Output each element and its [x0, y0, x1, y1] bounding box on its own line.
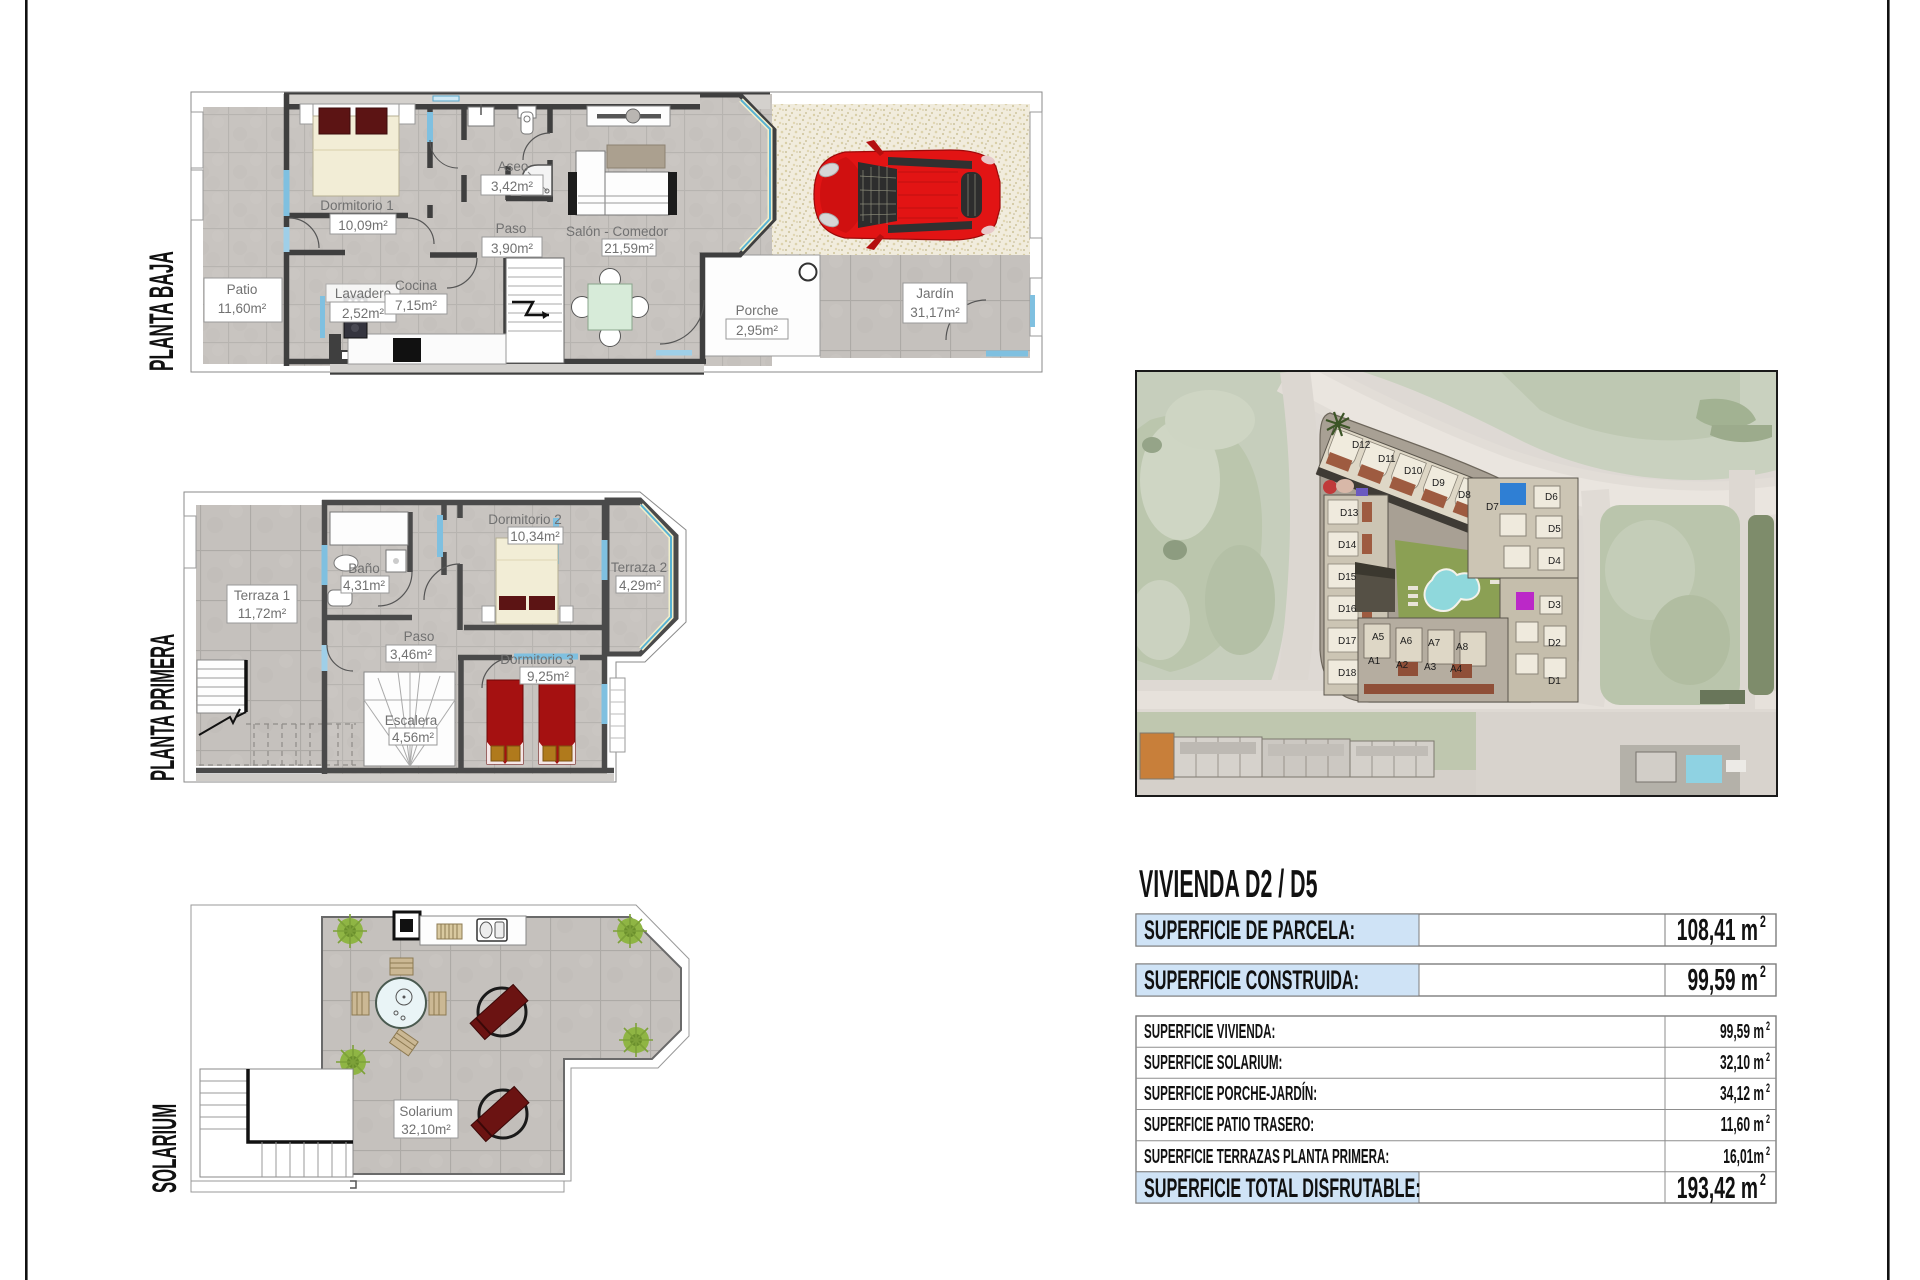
- svg-text:2: 2: [1766, 1113, 1770, 1126]
- svg-text:4,31m²: 4,31m²: [343, 578, 386, 593]
- svg-text:10,09m²: 10,09m²: [338, 218, 388, 233]
- svg-text:PLANTA BAJA: PLANTA BAJA: [143, 251, 181, 371]
- svg-text:A6: A6: [1400, 636, 1413, 647]
- svg-text:D5: D5: [1548, 524, 1561, 535]
- svg-text:11,60m²: 11,60m²: [218, 301, 267, 316]
- svg-text:A4: A4: [1450, 664, 1463, 675]
- svg-text:D6: D6: [1545, 492, 1558, 503]
- svg-text:99,59 m: 99,59 m: [1720, 1021, 1764, 1043]
- svg-text:9,25m²: 9,25m²: [527, 669, 570, 684]
- svg-text:A5: A5: [1372, 632, 1385, 643]
- svg-text:3,46m²: 3,46m²: [390, 647, 433, 662]
- svg-text:SUPERFICIE TERRAZAS PLANTA PRI: SUPERFICIE TERRAZAS PLANTA PRIMERA:: [1144, 1146, 1389, 1168]
- svg-text:SUPERFICIE PATIO TRASERO:: SUPERFICIE PATIO TRASERO:: [1144, 1114, 1314, 1136]
- svg-text:Patio: Patio: [227, 282, 258, 297]
- svg-text:Aseo: Aseo: [498, 159, 529, 174]
- svg-text:Paso: Paso: [404, 629, 435, 644]
- svg-text:2: 2: [1766, 1082, 1770, 1095]
- svg-text:Terraza 2: Terraza 2: [611, 560, 667, 575]
- svg-text:3,42m²: 3,42m²: [491, 179, 534, 194]
- svg-text:11,72m²: 11,72m²: [238, 606, 287, 621]
- svg-text:SUPERFICIE VIVIENDA:: SUPERFICIE VIVIENDA:: [1144, 1021, 1275, 1043]
- svg-text:D10: D10: [1404, 466, 1423, 477]
- svg-text:2: 2: [1766, 1145, 1770, 1158]
- svg-text:3,90m²: 3,90m²: [491, 241, 534, 256]
- svg-text:Cocina: Cocina: [395, 278, 438, 293]
- svg-text:16,01m: 16,01m: [1723, 1146, 1764, 1168]
- svg-text:D9: D9: [1432, 478, 1445, 489]
- svg-text:Solarium: Solarium: [399, 1104, 452, 1119]
- svg-text:SUPERFICIE TOTAL DISFRUTABLE:: SUPERFICIE TOTAL DISFRUTABLE:: [1144, 1173, 1421, 1203]
- svg-text:D14: D14: [1338, 540, 1357, 551]
- svg-text:Porche: Porche: [736, 303, 779, 318]
- svg-text:A7: A7: [1428, 638, 1441, 649]
- svg-text:D12: D12: [1352, 440, 1371, 451]
- svg-text:Jardín: Jardín: [916, 286, 954, 301]
- svg-text:D3: D3: [1548, 600, 1561, 611]
- svg-text:D4: D4: [1548, 556, 1561, 567]
- svg-text:SUPERFICIE DE PARCELA:: SUPERFICIE DE PARCELA:: [1144, 915, 1355, 945]
- svg-text:A1: A1: [1368, 656, 1381, 667]
- svg-text:32,10 m: 32,10 m: [1720, 1052, 1764, 1074]
- svg-text:2: 2: [1760, 1169, 1766, 1188]
- svg-text:7,15m²: 7,15m²: [395, 298, 438, 313]
- svg-text:Lavadero: Lavadero: [335, 286, 391, 301]
- svg-text:D17: D17: [1338, 636, 1357, 647]
- svg-text:SUPERFICIE CONSTRUIDA:: SUPERFICIE CONSTRUIDA:: [1144, 965, 1359, 995]
- svg-text:SOLARIUM: SOLARIUM: [146, 1104, 184, 1193]
- svg-text:A3: A3: [1424, 662, 1437, 673]
- svg-text:11,60 m: 11,60 m: [1721, 1114, 1764, 1136]
- svg-text:D7: D7: [1486, 502, 1499, 513]
- svg-text:D16: D16: [1338, 604, 1357, 615]
- svg-text:Dormitorio 3: Dormitorio 3: [500, 652, 574, 667]
- svg-text:2: 2: [1766, 1020, 1770, 1033]
- svg-text:4,29m²: 4,29m²: [619, 578, 662, 593]
- svg-text:193,42 m: 193,42 m: [1677, 1172, 1758, 1206]
- svg-text:A8: A8: [1456, 642, 1469, 653]
- svg-text:SUPERFICIE SOLARIUM:: SUPERFICIE SOLARIUM:: [1144, 1052, 1282, 1074]
- svg-text:Salón - Comedor: Salón - Comedor: [566, 224, 669, 239]
- svg-text:Dormitorio 2: Dormitorio 2: [488, 512, 562, 527]
- svg-text:108,41 m: 108,41 m: [1677, 914, 1758, 948]
- svg-text:10,34m²: 10,34m²: [510, 529, 560, 544]
- svg-text:VIVIENDA D2 / D5: VIVIENDA D2 / D5: [1139, 862, 1317, 905]
- svg-text:Terraza 1: Terraza 1: [234, 588, 290, 603]
- svg-text:D15: D15: [1338, 572, 1357, 583]
- svg-text:2,95m²: 2,95m²: [736, 323, 779, 338]
- svg-text:2,52m²: 2,52m²: [342, 306, 385, 321]
- svg-text:Baño: Baño: [348, 561, 380, 576]
- svg-text:Paso: Paso: [496, 221, 527, 236]
- svg-text:99,59 m: 99,59 m: [1687, 964, 1758, 998]
- svg-text:2: 2: [1760, 911, 1766, 930]
- svg-text:Escalera: Escalera: [385, 713, 438, 728]
- svg-text:D2: D2: [1548, 638, 1561, 649]
- svg-text:Dormitorio 1: Dormitorio 1: [320, 198, 394, 213]
- svg-text:D18: D18: [1338, 668, 1357, 679]
- svg-text:4,56m²: 4,56m²: [392, 730, 435, 745]
- svg-text:32,10m²: 32,10m²: [401, 1122, 451, 1137]
- svg-text:2: 2: [1766, 1051, 1770, 1064]
- svg-text:34,12 m: 34,12 m: [1720, 1083, 1764, 1105]
- svg-text:31,17m²: 31,17m²: [910, 305, 960, 320]
- svg-text:D1: D1: [1548, 676, 1561, 687]
- svg-text:D11: D11: [1378, 454, 1396, 465]
- svg-text:D8: D8: [1458, 490, 1471, 501]
- svg-text:SUPERFICIE PORCHE-JARDÍN:: SUPERFICIE PORCHE-JARDÍN:: [1144, 1082, 1317, 1105]
- svg-text:2: 2: [1760, 961, 1766, 980]
- svg-text:D13: D13: [1340, 508, 1359, 519]
- svg-text:A2: A2: [1396, 660, 1409, 671]
- svg-text:PLANTA PRIMERA: PLANTA PRIMERA: [144, 634, 182, 781]
- svg-text:21,59m²: 21,59m²: [604, 241, 654, 256]
